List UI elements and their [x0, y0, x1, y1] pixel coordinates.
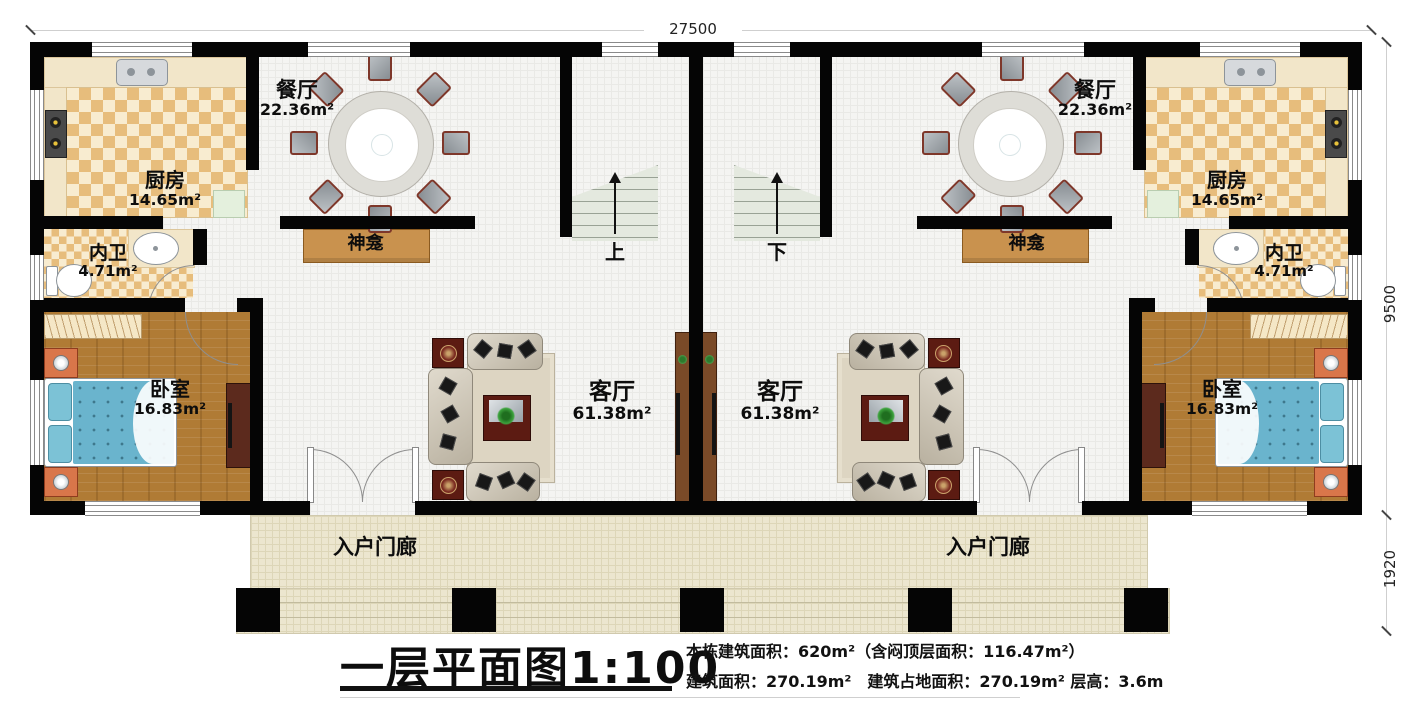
wall: [1185, 229, 1199, 265]
stair-arrow-head: [609, 166, 621, 183]
nightstand: [1314, 467, 1348, 497]
floor-plan: 27500 9500 1920 入户门廊 入户门廊: [0, 0, 1414, 709]
wall: [415, 501, 689, 515]
bedroom-area: 16.83m²: [1172, 401, 1272, 417]
pillow: [48, 383, 72, 421]
side-table: [928, 470, 960, 500]
lamp-icon: [53, 355, 69, 371]
lamp-icon: [53, 474, 69, 490]
table-ornament: [440, 477, 457, 494]
wall: [1307, 501, 1362, 515]
chair-icon: [308, 178, 345, 215]
faucet-icon: [127, 68, 135, 76]
window: [1348, 255, 1362, 300]
window: [602, 42, 658, 57]
stair-arrow-head: [771, 166, 783, 183]
burner-icon: [1331, 138, 1342, 149]
window: [30, 380, 44, 465]
door-leaf: [1078, 447, 1085, 503]
sofa-left: [919, 368, 964, 465]
wall: [280, 216, 475, 229]
nightstand: [44, 467, 78, 497]
central-wall: [689, 42, 703, 515]
entry-door-arc-right: [362, 449, 415, 502]
wall: [30, 298, 185, 312]
living-area: 61.38m²: [562, 406, 662, 424]
wall: [1348, 300, 1362, 380]
table-ornament: [440, 345, 457, 362]
wall: [30, 216, 163, 229]
shrine-label: 神龛: [303, 235, 428, 254]
wall: [790, 42, 982, 57]
door-leaf: [973, 447, 980, 503]
living-area: 61.38m²: [730, 406, 830, 424]
door-leaf: [412, 447, 419, 503]
chair-icon: [415, 71, 452, 108]
sofa-bottom: [466, 462, 540, 502]
chair-icon: [442, 131, 470, 155]
living-label: 客厅: [730, 380, 830, 404]
dining-area: 22.36m²: [247, 102, 347, 119]
sofa-top: [467, 333, 543, 370]
wall: [30, 42, 44, 90]
cushion: [517, 339, 536, 358]
chair-icon: [1074, 131, 1102, 155]
kitchen-sink: [1224, 59, 1276, 86]
entry-door-arc-right: [977, 449, 1030, 502]
wall: [250, 298, 263, 513]
window: [1192, 501, 1307, 516]
stove-icon: [1325, 110, 1347, 158]
cushion: [497, 471, 516, 490]
cushion: [935, 433, 952, 450]
porch-label-right: 入户门廊: [908, 536, 1068, 558]
chair-icon: [290, 131, 318, 155]
chair-icon: [940, 71, 977, 108]
window: [30, 90, 44, 180]
door-leaf: [307, 447, 314, 503]
top-dimension-label: 27500: [644, 20, 742, 38]
porch-column: [908, 588, 952, 632]
living-tv-cabinet: [701, 332, 717, 505]
nightstand: [1314, 348, 1348, 378]
wall: [30, 300, 44, 380]
tv-icon: [1160, 403, 1164, 448]
cushion: [497, 343, 513, 359]
faucet-icon: [147, 68, 155, 76]
wall: [410, 42, 602, 57]
pillow: [48, 425, 72, 463]
info-line-2: 建筑面积：270.19m² 建筑占地面积：270.19m² 层高：3.6m: [686, 668, 1163, 692]
cushion: [516, 472, 535, 491]
stair-arrow: [776, 174, 778, 234]
porch-column: [452, 588, 496, 632]
sofa-top: [849, 333, 925, 370]
unit-right: 神龛: [703, 42, 1362, 515]
right-dimension-label-main: 9500: [1381, 276, 1399, 332]
wall: [917, 216, 1112, 229]
bedroom-area: 16.83m²: [120, 401, 220, 417]
chair-icon: [940, 178, 977, 215]
cushion: [475, 473, 493, 491]
burner-icon: [1331, 117, 1342, 128]
window: [85, 501, 200, 516]
burner-icon: [50, 138, 61, 149]
table-center: [371, 134, 393, 156]
bedroom-label: 卧室: [1172, 379, 1272, 400]
burner-icon: [50, 117, 61, 128]
wall: [192, 42, 308, 57]
unit-left: 神龛: [30, 42, 689, 515]
window: [308, 42, 410, 57]
tv-icon: [676, 393, 680, 455]
tv-icon: [228, 403, 232, 448]
window: [982, 42, 1084, 57]
bedroom-label: 卧室: [120, 379, 220, 400]
closet: [44, 314, 142, 339]
side-table: [432, 338, 464, 368]
cushion: [879, 343, 895, 359]
stair-label: 下: [742, 242, 812, 263]
chair-icon: [1047, 178, 1084, 215]
cushion: [899, 473, 917, 491]
window: [92, 42, 192, 57]
plant-icon: [705, 355, 714, 364]
table-center: [999, 134, 1021, 156]
tv-icon: [712, 393, 716, 455]
porch-column: [1124, 588, 1168, 632]
kitchen-label: 厨房: [115, 170, 215, 191]
sofa-bottom: [852, 462, 926, 502]
chair-icon: [415, 178, 452, 215]
nightstand: [44, 348, 78, 378]
cushion: [856, 472, 875, 491]
kitchen-label: 厨房: [1177, 170, 1277, 191]
coffee-table: [861, 395, 909, 441]
window: [1348, 380, 1362, 465]
chair-icon: [922, 131, 950, 155]
living-label: 客厅: [562, 380, 662, 404]
kitchen-cabinet: [1147, 190, 1179, 218]
entry-door-arc-left: [1029, 449, 1082, 502]
wall: [820, 42, 832, 237]
title-underline-thin: [340, 697, 1020, 698]
bedroom-tv-cabinet: [1140, 383, 1166, 468]
lamp-icon: [1323, 355, 1339, 371]
kitchen-area: 14.65m²: [1177, 192, 1277, 208]
title-underline: [340, 686, 672, 691]
dining-label: 餐厅: [247, 79, 347, 101]
wall: [1129, 298, 1142, 513]
plant-icon: [678, 355, 687, 364]
faucet-icon: [1257, 68, 1265, 76]
sofa-left: [428, 368, 473, 465]
cushion: [932, 404, 951, 423]
faucet-icon: [1237, 68, 1245, 76]
stair-label: 上: [580, 242, 650, 263]
dining-label: 餐厅: [1045, 79, 1145, 101]
entry-door-arc-left: [310, 449, 363, 502]
pillow: [1320, 425, 1344, 463]
plant-icon: [877, 407, 895, 425]
bathroom-label: 内卫: [58, 244, 158, 264]
window: [1348, 90, 1362, 180]
cushion: [855, 339, 874, 358]
plant-icon: [497, 407, 515, 425]
shrine-label: 神龛: [964, 235, 1089, 254]
wall: [658, 42, 689, 57]
cushion: [438, 376, 457, 395]
porch-column: [680, 588, 724, 632]
wall: [703, 42, 734, 57]
cushion: [440, 404, 459, 423]
side-table: [928, 338, 960, 368]
table-ornament: [935, 477, 952, 494]
pillow: [1320, 383, 1344, 421]
wall: [703, 501, 977, 515]
cushion: [877, 471, 896, 490]
porch-column: [236, 588, 280, 632]
window: [734, 42, 790, 57]
wall: [1207, 298, 1362, 312]
wall: [30, 501, 85, 515]
cushion: [934, 376, 953, 395]
chair-icon: [368, 53, 392, 81]
stove-icon: [45, 110, 67, 158]
coffee-table: [483, 395, 531, 441]
window: [1200, 42, 1300, 57]
bathroom-label: 内卫: [1234, 244, 1334, 264]
kitchen-sink: [116, 59, 168, 86]
lamp-icon: [1323, 474, 1339, 490]
table-ornament: [935, 345, 952, 362]
side-table: [432, 470, 464, 500]
bedroom-tv-cabinet: [226, 383, 252, 468]
wall: [1348, 42, 1362, 90]
cushion: [473, 339, 493, 359]
porch-label-left: 入户门廊: [295, 536, 455, 558]
wall: [193, 229, 207, 265]
cushion: [439, 433, 456, 450]
closet: [1250, 314, 1348, 339]
info-line-1: 本栋建筑面积：620m²（含闷顶层面积：116.47m²）: [686, 638, 1085, 662]
kitchen-cabinet: [213, 190, 245, 218]
stair-arrow: [614, 174, 616, 234]
bathroom-area: 4.71m²: [58, 264, 158, 280]
cushion: [899, 339, 919, 359]
wall: [1229, 216, 1362, 229]
bathroom-area: 4.71m²: [1234, 264, 1334, 280]
wall: [1084, 42, 1200, 57]
wall: [560, 42, 572, 237]
chair-icon: [1000, 53, 1024, 81]
kitchen-area: 14.65m²: [115, 192, 215, 208]
window: [30, 255, 44, 300]
right-dimension-label-porch: 1920: [1381, 541, 1399, 597]
dining-area: 22.36m²: [1045, 102, 1145, 119]
